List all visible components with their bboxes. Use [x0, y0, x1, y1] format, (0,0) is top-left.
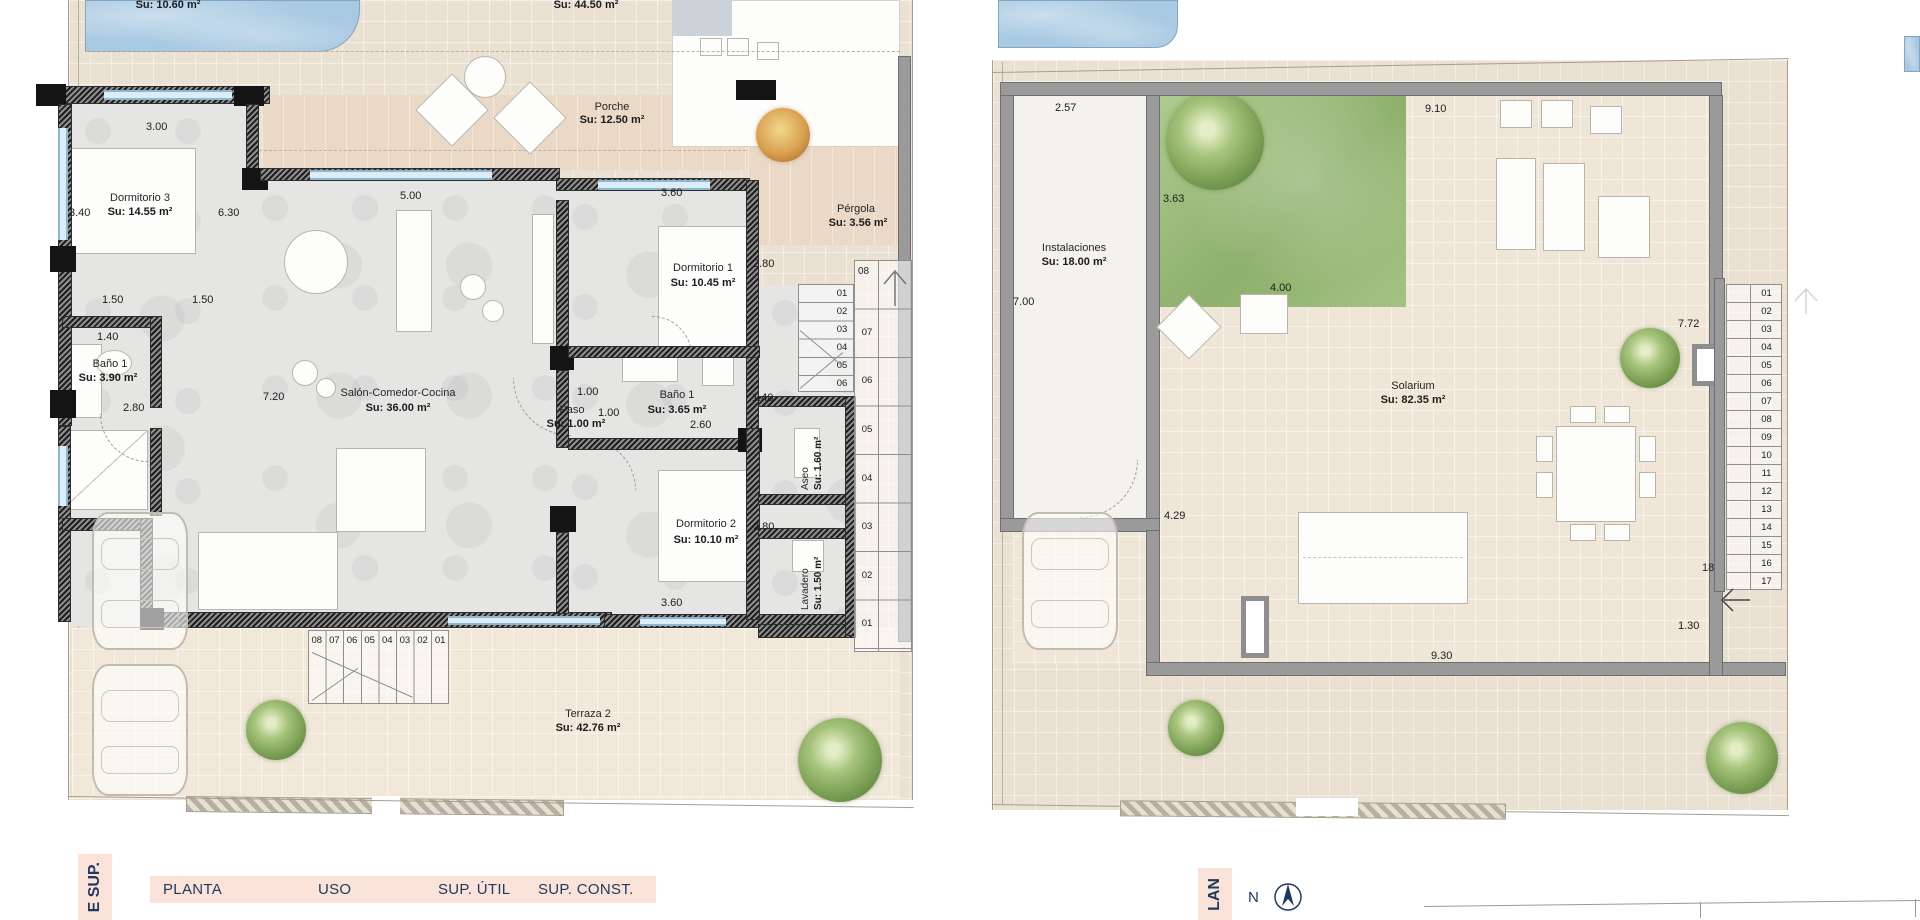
- pouf: [460, 274, 486, 300]
- tree-icon: [1168, 700, 1224, 756]
- dimension: 3.60: [661, 597, 682, 609]
- stair-step-number: 05: [361, 632, 379, 648]
- wall-block: [550, 506, 576, 532]
- dimension: 1.30: [1678, 620, 1699, 632]
- neighbor-pool-corner: [1904, 36, 1920, 72]
- chair: [1639, 436, 1656, 462]
- column-header-sup-const: SUP. CONST.: [538, 882, 634, 897]
- window: [640, 617, 726, 626]
- outdoor-table: [1598, 196, 1650, 258]
- chair: [1536, 436, 1553, 462]
- driveway-gap: [372, 796, 400, 816]
- stair-step-number: 01: [431, 632, 449, 648]
- lavadero-label: Lavadero: [800, 536, 811, 610]
- chair: [1536, 472, 1553, 498]
- solarium-area-label: Su: 82.35 m²: [1372, 393, 1454, 407]
- dimension: 4.00: [1270, 282, 1291, 294]
- instalaciones-area-label: Su: 18.00 m²: [1030, 255, 1118, 269]
- dormitorio2-label: Dormitorio 2: [658, 517, 754, 531]
- wall: [150, 316, 162, 408]
- lavadero-label-group: Lavadero Su: 1.50 m²: [800, 536, 824, 610]
- pouf: [482, 300, 504, 322]
- bano1-area-label: Su: 3.90 m²: [66, 371, 150, 385]
- kitchen-island: [336, 448, 426, 532]
- parapet-wall: [1000, 95, 1014, 531]
- dimension: 1.40: [97, 331, 118, 343]
- stair-direction-arrow-icon: [1718, 584, 1752, 618]
- car: [92, 512, 188, 650]
- column-header-sup-util: SUP. ÚTIL: [438, 882, 510, 897]
- aseo-label-group: Aseo Su: 1.60 m²: [800, 420, 824, 490]
- parapet-wall: [1000, 82, 1722, 96]
- stair-up-arrow-icon: [880, 266, 910, 308]
- interior-stair-numbers: 010203040506: [832, 284, 852, 392]
- dimension: 1.50: [102, 294, 123, 306]
- dimension: 7.72: [1678, 318, 1699, 330]
- stair-step-number: 05: [856, 405, 878, 454]
- dimension: 3.40: [69, 207, 90, 219]
- window: [598, 180, 710, 190]
- chair: [1604, 406, 1630, 423]
- stair-step-number: 03: [396, 632, 414, 648]
- wall-block: [736, 80, 776, 100]
- parapet-wall: [1146, 662, 1786, 676]
- dimension: 6.30: [218, 207, 239, 219]
- stair-step-number: 01: [856, 599, 878, 648]
- pool-edge-dashed-line: [85, 51, 900, 52]
- stair-step-number: 04: [1751, 338, 1782, 356]
- dimension: 1.40: [752, 392, 773, 404]
- dimension: 2.60: [690, 419, 711, 431]
- stair-step-number: 02: [1751, 302, 1782, 320]
- window: [104, 90, 232, 100]
- dormitorio3-label: Dormitorio 3: [92, 191, 188, 205]
- terrace-lower-area: [72, 628, 900, 798]
- table-divider: [1303, 557, 1463, 558]
- terrace-top-area-label: Su: 44.50 m²: [538, 0, 634, 12]
- tv-unit: [532, 214, 554, 344]
- aseo-label: Aseo: [800, 420, 811, 490]
- stair-step-number: 07: [856, 308, 878, 357]
- parapet-wall: [1146, 530, 1160, 676]
- car: [1022, 512, 1118, 650]
- dimension: 4.29: [1164, 510, 1185, 522]
- compass-icon: [1270, 878, 1306, 914]
- wall: [62, 316, 158, 328]
- dimension: 1.00: [598, 407, 619, 419]
- left-section-tab: E SUP.: [78, 854, 112, 920]
- sun-lounger: [1543, 163, 1585, 251]
- dimension: 9.30: [1431, 650, 1452, 662]
- wall: [556, 200, 569, 348]
- wall: [556, 532, 569, 614]
- stair-step-number: 04: [379, 632, 397, 648]
- chair: [1639, 472, 1656, 498]
- column-header-uso: USO: [318, 882, 351, 897]
- salon-label: Salón-Comedor-Cocina: [333, 386, 463, 400]
- paso-area-label: Su: 1.00 m²: [538, 417, 614, 431]
- stair-step-number: 10: [1751, 446, 1782, 464]
- next-table-tick: [1700, 902, 1701, 918]
- next-table-border: [1424, 900, 1920, 907]
- wall: [758, 494, 856, 505]
- stair-step-number: 09: [1751, 428, 1782, 446]
- bano2-label: Baño 1: [643, 388, 711, 402]
- wall-block: [234, 86, 264, 106]
- dimension: 1.50: [192, 294, 213, 306]
- interior-divider-wall: [1146, 95, 1160, 519]
- wall: [150, 428, 162, 516]
- window: [448, 616, 600, 625]
- window: [310, 170, 492, 180]
- right-tab-label: LAN: [1206, 878, 1224, 911]
- solarium-label: Solarium: [1378, 379, 1448, 393]
- lounge-chair: [1500, 100, 1532, 128]
- stair-step-number: 16: [1751, 554, 1782, 572]
- pool-area-label: Su: 10.60 m²: [120, 0, 216, 12]
- wall: [568, 438, 760, 450]
- salon-area-label: Su: 36.00 m²: [352, 401, 444, 415]
- stair-step-number: 15: [1751, 536, 1782, 554]
- dormitorio2-area-label: Su: 10.10 m²: [656, 533, 756, 547]
- wall: [568, 346, 760, 358]
- stair-step-number: 05: [1751, 356, 1782, 374]
- patio-gray-area: [672, 0, 732, 36]
- dimension: 1.00: [577, 386, 598, 398]
- wall-block: [50, 246, 76, 272]
- dimension: 3.63: [1163, 193, 1184, 205]
- stair-step-number: 12: [1751, 482, 1782, 500]
- stair-step-number: 06: [1751, 374, 1782, 392]
- instalaciones-label: Instalaciones: [1032, 241, 1116, 255]
- bano2-area-label: Su: 3.65 m²: [637, 403, 717, 417]
- sun-lounger: [1496, 158, 1536, 250]
- stair-step-number: 06: [832, 374, 852, 392]
- stair-step-number: 02: [856, 551, 878, 600]
- aseo-area-label: Su: 1.60 m²: [813, 420, 824, 490]
- wall: [758, 624, 856, 638]
- dimension: 7.00: [1013, 296, 1034, 308]
- dimension: 7.20: [263, 391, 284, 403]
- stair-step-number: 11: [1751, 464, 1782, 482]
- roof-vent: [1241, 596, 1269, 658]
- tree-icon: [1166, 92, 1264, 190]
- stair-step-number: 06: [343, 632, 361, 648]
- stair-step-number: 04: [856, 454, 878, 503]
- stair-step-number: 07: [1751, 392, 1782, 410]
- right-section-tab: LAN: [1198, 868, 1232, 920]
- tree-icon: [798, 718, 882, 802]
- stair-step-number: 06: [856, 357, 878, 406]
- dimension: 2.80: [123, 402, 144, 414]
- lavadero-area-label: Su: 1.50 m²: [813, 536, 824, 610]
- sofa: [396, 210, 432, 332]
- skylight: [1240, 294, 1288, 334]
- pergola-label: Pérgola: [820, 202, 892, 216]
- dimension: 5.00: [400, 190, 421, 202]
- pool-fragment: [998, 0, 1178, 48]
- stair-step-number: 07: [326, 632, 344, 648]
- dimension: 3.60: [661, 187, 682, 199]
- dormitorio1-area-label: Su: 10.45 m²: [655, 276, 751, 290]
- bano1-label: Baño 1: [76, 357, 144, 371]
- window: [58, 446, 68, 506]
- solarium-table: [1298, 512, 1468, 604]
- ghost-stair-arrow-icon: [1788, 286, 1824, 316]
- exterior-stair-numbers: 07060504030201: [856, 308, 878, 648]
- tree-icon: [1706, 722, 1778, 794]
- patio-chair: [700, 38, 722, 56]
- dormitorio1-label: Dormitorio 1: [655, 261, 751, 275]
- stair-step-number: 01: [832, 284, 852, 302]
- lounge-chair: [1590, 106, 1622, 134]
- stair-step-number: 01: [1751, 284, 1782, 302]
- stair-side-wall: [1714, 278, 1725, 592]
- chair: [1570, 406, 1596, 423]
- car: [92, 664, 188, 796]
- stair-step-number: 03: [856, 502, 878, 551]
- dimension: 9.10: [1425, 103, 1446, 115]
- porche-area-label: Su: 12.50 m²: [568, 113, 656, 127]
- left-tab-label: E SUP.: [86, 862, 104, 912]
- paso-label: Paso: [548, 403, 596, 417]
- next-table-tick: [1915, 899, 1916, 917]
- stair-step-number: 13: [1751, 500, 1782, 518]
- stair-step-number: 08: [1751, 410, 1782, 428]
- lounge-chair: [1541, 100, 1573, 128]
- column-header-planta: PLANTA: [163, 882, 222, 897]
- porch-table-round: [464, 56, 506, 98]
- stair-step-number: 03: [1751, 320, 1782, 338]
- pouf: [292, 360, 318, 386]
- wall-block: [50, 390, 76, 418]
- dimension: 2.80: [753, 521, 774, 533]
- driveway-gap: [1296, 798, 1358, 816]
- porch-dashed-line: [214, 150, 746, 151]
- dimension: 2.80: [753, 258, 774, 270]
- dimension: 3.00: [146, 121, 167, 133]
- stair-step-number: 14: [1751, 518, 1782, 536]
- tree-icon: [246, 700, 306, 760]
- window: [58, 128, 68, 240]
- dimension: 18: [1702, 562, 1714, 574]
- terraza2-area-label: Su: 42.76 m²: [548, 721, 628, 735]
- dining-table: [1556, 426, 1636, 522]
- terraza2-label: Terraza 2: [553, 707, 623, 721]
- stair-step-number: 03: [832, 320, 852, 338]
- compass-north-label: N: [1248, 890, 1259, 905]
- dormitorio3-area-label: Su: 14.55 m²: [92, 205, 188, 219]
- tree-orange-icon: [756, 108, 810, 162]
- stair-step-label: 08: [858, 266, 869, 277]
- stair-divider-line: [878, 260, 879, 652]
- floor-plan-sheet: 07060504030201 08 010203040506 080706050…: [0, 0, 1920, 920]
- chair: [1570, 524, 1596, 541]
- stair-step-number: 02: [832, 302, 852, 320]
- wall-block: [36, 84, 66, 106]
- patio-chair: [727, 38, 749, 56]
- stair-step-number: 02: [414, 632, 432, 648]
- dining-table-round: [284, 230, 348, 294]
- stair-numbers: 0102030405060708091011121314151617: [1751, 284, 1782, 590]
- stair-step-number: 17: [1751, 572, 1782, 590]
- pergola-area-label: Su: 3.56 m²: [816, 216, 900, 230]
- kitchen-counter: [198, 532, 338, 610]
- tree-icon: [1620, 328, 1680, 388]
- terrace-stair-numbers: 0807060504030201: [308, 632, 449, 648]
- stair-step-number: 08: [308, 632, 326, 648]
- dimension: 2.57: [1055, 102, 1076, 114]
- chair: [1604, 524, 1630, 541]
